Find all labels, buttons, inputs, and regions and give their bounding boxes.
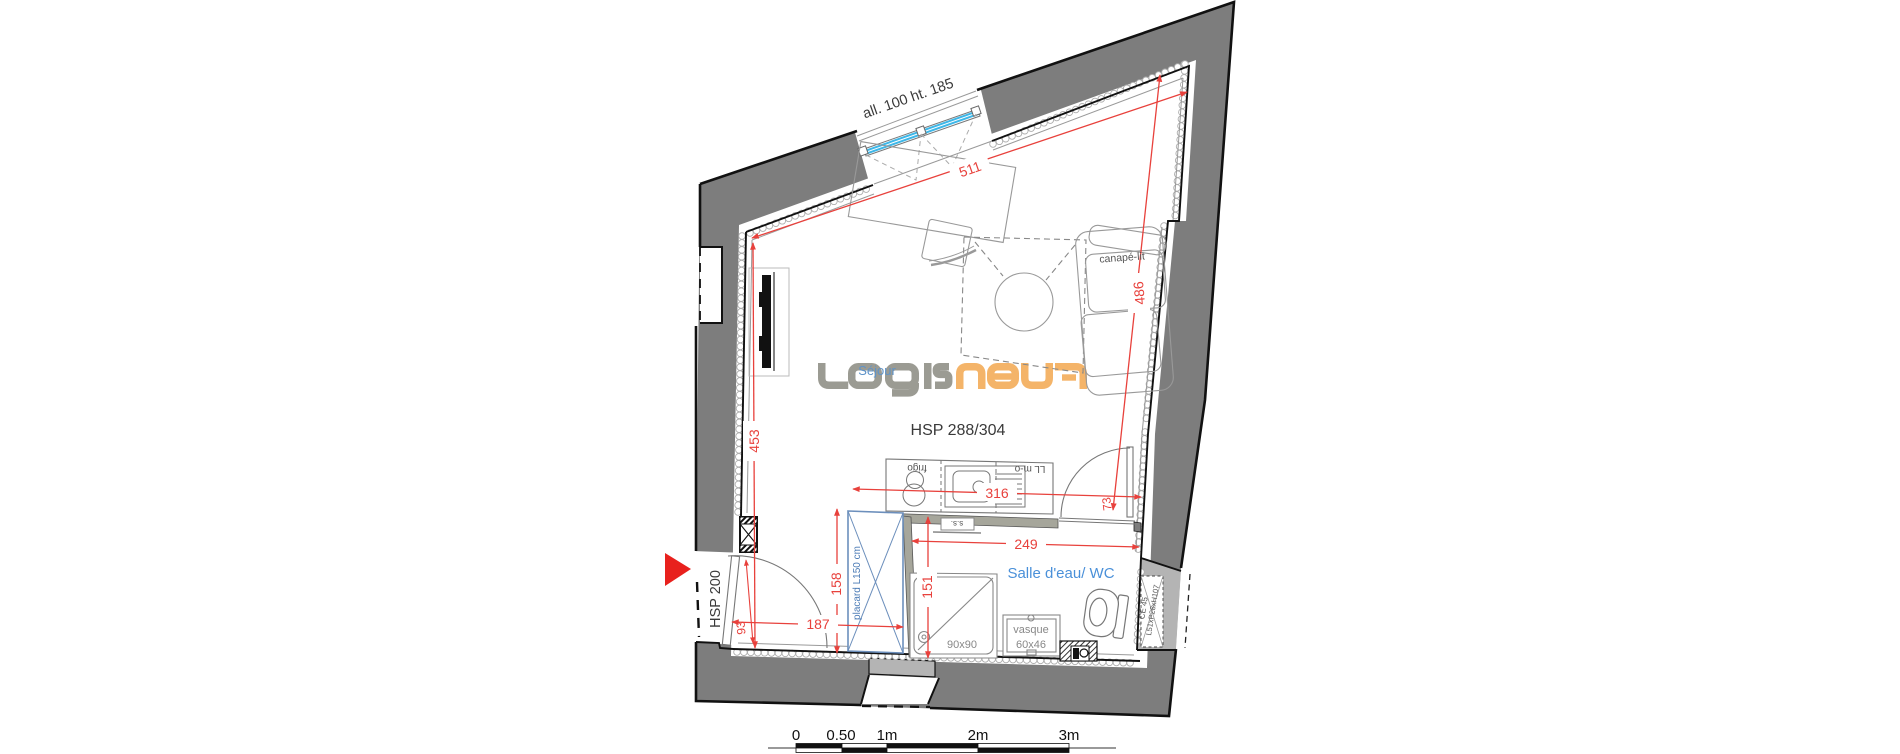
svg-text:60x46: 60x46	[1016, 639, 1046, 651]
svg-text:316: 316	[985, 485, 1009, 501]
svg-text:249: 249	[1014, 536, 1038, 552]
svg-text:frigo: frigo	[907, 462, 927, 473]
svg-text:vasque: vasque	[1013, 624, 1048, 636]
svg-text:2m: 2m	[968, 727, 989, 744]
svg-text:486: 486	[1130, 280, 1148, 305]
svg-text:HSP 288/304: HSP 288/304	[911, 422, 1006, 439]
svg-text:LL m-o: LL m-o	[1014, 463, 1045, 474]
svg-text:93: 93	[734, 621, 749, 636]
svg-text:90x90: 90x90	[947, 639, 977, 651]
svg-text:453: 453	[746, 429, 762, 453]
svg-text:Salle d'eau/ WC: Salle d'eau/ WC	[1007, 565, 1114, 582]
svg-text:placard L150 cm: placard L150 cm	[852, 546, 863, 620]
svg-text:1m: 1m	[877, 727, 898, 744]
svg-text:3m: 3m	[1059, 727, 1080, 744]
svg-text:187: 187	[806, 616, 830, 632]
svg-text:73: 73	[1099, 496, 1115, 511]
svg-text:151: 151	[919, 575, 935, 599]
svg-text:s.s.: s.s.	[951, 519, 963, 528]
svg-text:HSP 200: HSP 200	[708, 570, 724, 628]
svg-text:0.50: 0.50	[826, 727, 855, 744]
svg-text:0: 0	[792, 727, 800, 744]
svg-text:Séjour: Séjour	[858, 363, 896, 378]
svg-text:158: 158	[828, 572, 844, 596]
